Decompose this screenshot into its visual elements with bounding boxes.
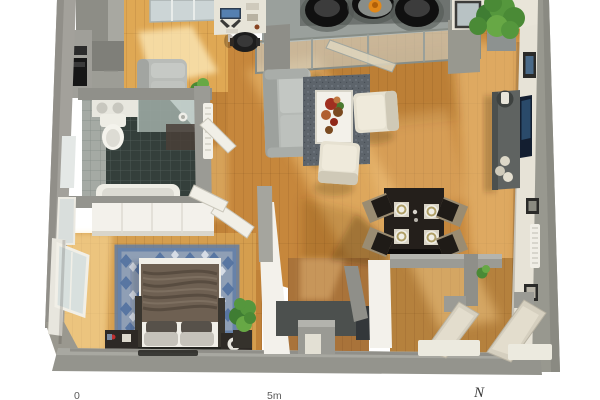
svg-text:5m: 5m xyxy=(267,390,282,400)
svg-text:0: 0 xyxy=(74,390,80,400)
svg-text:N: N xyxy=(473,385,485,400)
